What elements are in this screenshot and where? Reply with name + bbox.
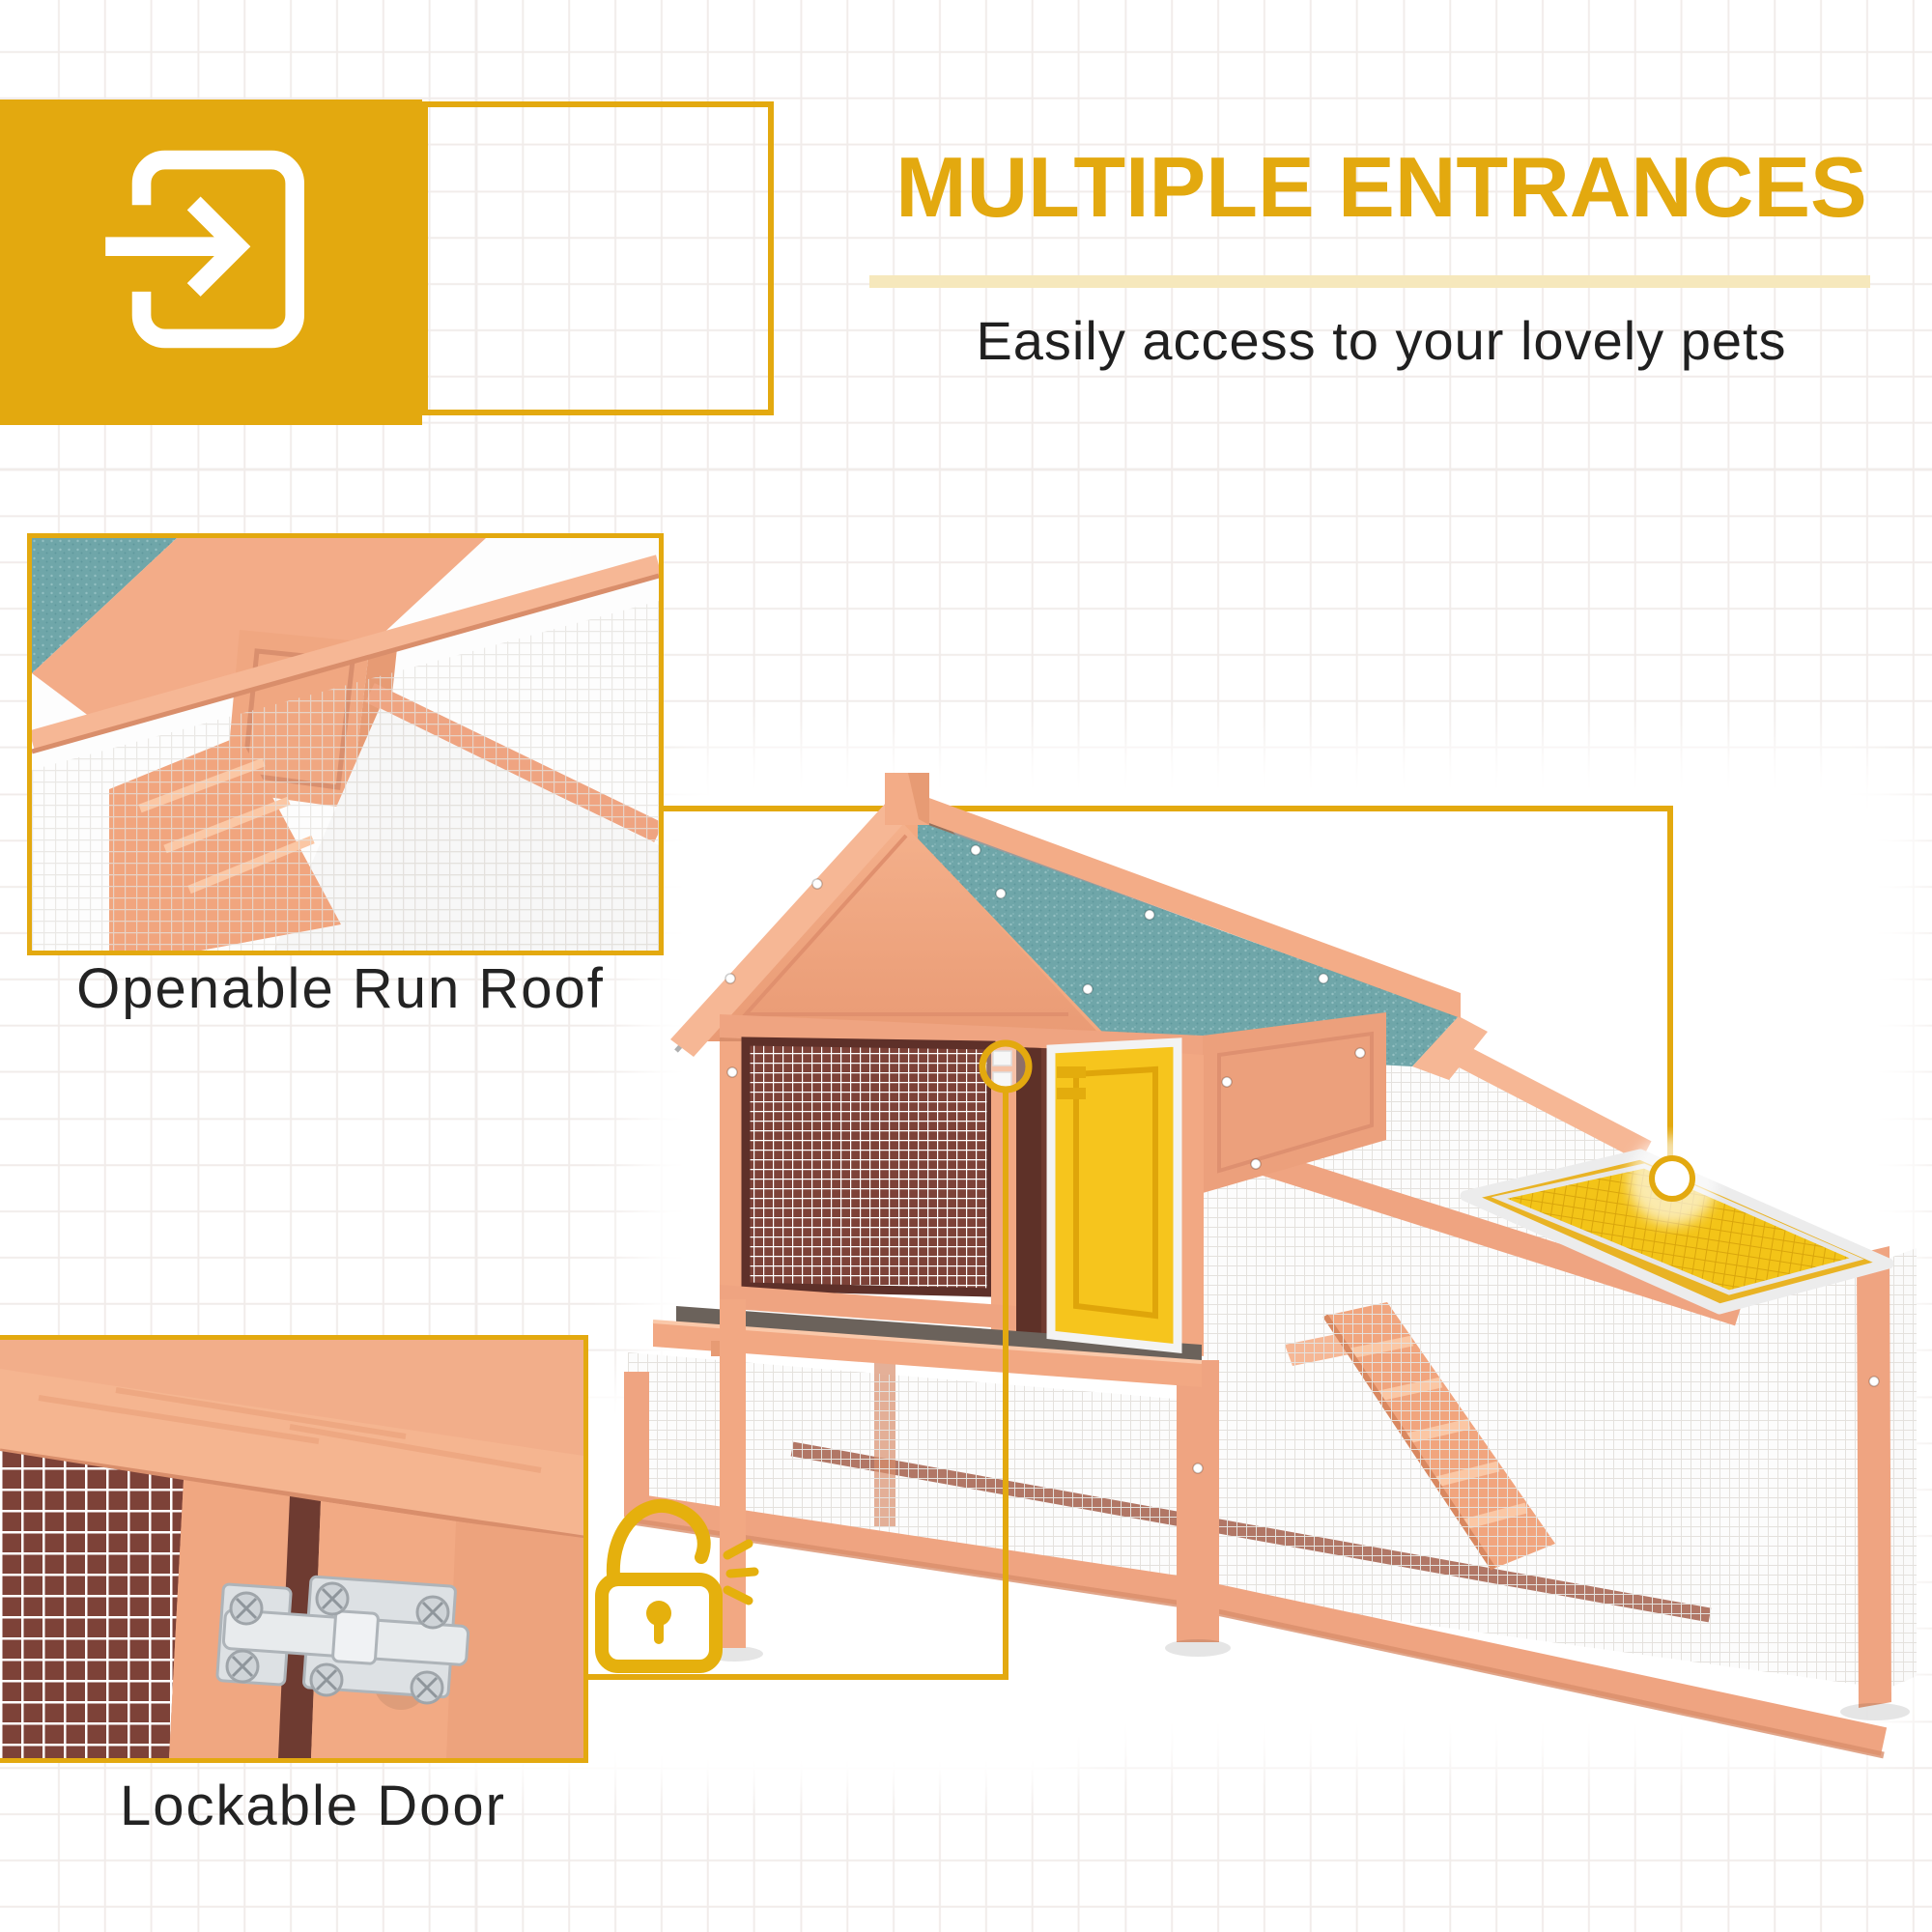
- padlock-unlocked-icon: [575, 1488, 768, 1715]
- inset-photo-lockable-door: [0, 1335, 588, 1763]
- mesh-wires: [0, 1451, 184, 1758]
- page-subtitle: Easily access to your lovely pets: [831, 311, 1932, 371]
- barrel-bolt-latch: [217, 1577, 469, 1703]
- page-title: MULTIPLE ENTRANCES: [831, 145, 1932, 230]
- caption-run-roof: Openable Run Roof: [27, 958, 654, 1020]
- run-roof-detail-illustration: [32, 538, 659, 951]
- title-underline: [869, 275, 1870, 288]
- enter-arrow-icon: [95, 143, 311, 355]
- inset-photo-run-roof: [27, 533, 664, 955]
- accent-outline-box: [422, 101, 774, 415]
- caption-lockable-door: Lockable Door: [14, 1776, 612, 1837]
- lock-spark-lines: [727, 1544, 754, 1601]
- door-latch-detail-illustration: [0, 1340, 583, 1758]
